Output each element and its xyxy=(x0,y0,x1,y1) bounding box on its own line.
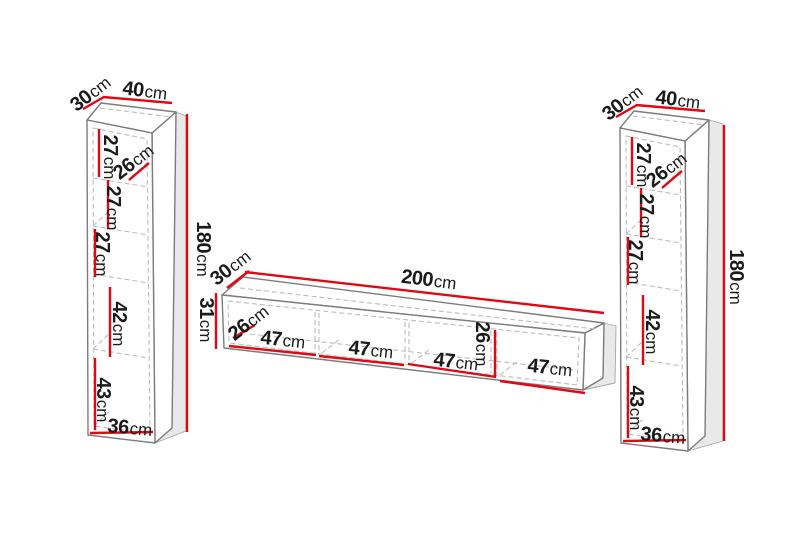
right-cabinet-drawing: 30cm 40cm 180cm 27cm 26cm 27cm 27cm 42cm… xyxy=(598,80,747,451)
svg-text:27cm: 27cm xyxy=(624,240,646,285)
diagram-canvas: 30cm 40cm 180cm 27cm 26cm 27cm 27cm 42cm… xyxy=(0,0,800,533)
right-cabinet-shelf4-label: 42cm xyxy=(641,310,663,355)
left-cabinet-shelf3-label: 27cm xyxy=(91,232,113,277)
svg-text:180cm: 180cm xyxy=(725,249,747,305)
svg-text:26cm: 26cm xyxy=(471,322,493,367)
right-cabinet-shelf3-label: 27cm xyxy=(624,240,646,285)
right-cabinet-shelf2-label: 27cm xyxy=(635,194,657,239)
left-cabinet-shelf2-label: 27cm xyxy=(102,186,124,231)
svg-text:27cm: 27cm xyxy=(102,186,124,231)
left-cabinet-side-face xyxy=(152,112,176,443)
furniture-dimension-diagram: 30cm 40cm 180cm 27cm 26cm 27cm 27cm 42cm… xyxy=(0,0,800,533)
tv-stand-height-label: 31cm xyxy=(195,298,217,343)
right-cabinet-side-face xyxy=(685,120,709,451)
tv-stand-inner-height-label: 26cm xyxy=(471,322,493,367)
svg-text:27cm: 27cm xyxy=(635,194,657,239)
svg-text:42cm: 42cm xyxy=(108,302,130,347)
svg-text:31cm: 31cm xyxy=(195,298,217,343)
right-cabinet-height-label: 180cm xyxy=(725,249,747,305)
svg-text:42cm: 42cm xyxy=(641,310,663,355)
svg-text:27cm: 27cm xyxy=(91,232,113,277)
left-cabinet-shelf4-label: 42cm xyxy=(108,302,130,347)
